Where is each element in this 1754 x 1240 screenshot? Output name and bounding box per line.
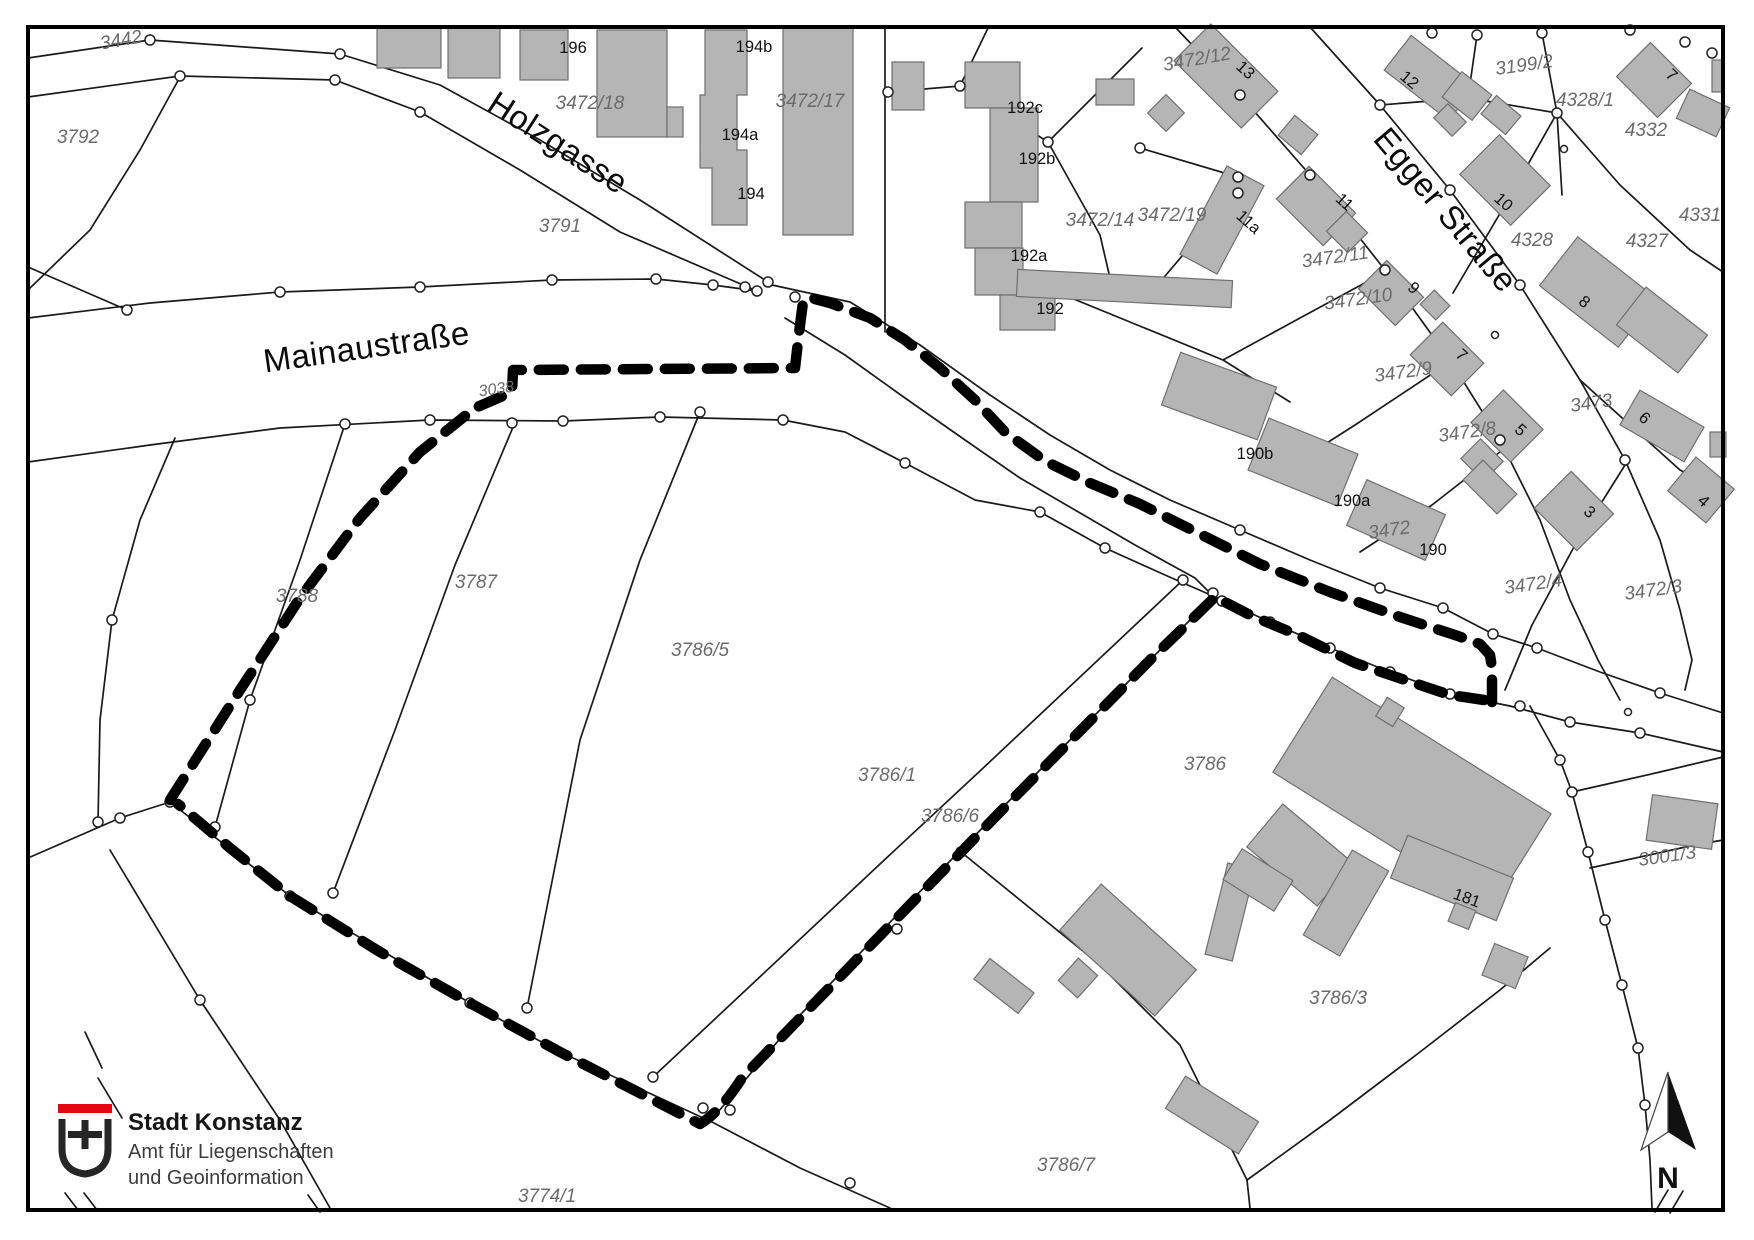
house-label-194b: 194b [736,38,773,56]
parcel-label-3472-18: 3472/18 [556,93,625,114]
parcel-label-3786-5: 3786/5 [671,640,730,661]
parcel-label-3792: 3792 [57,127,100,148]
house-label-192: 192 [1036,300,1064,318]
house-label-190b: 190b [1237,445,1274,463]
parcel-label-3472-14: 3472/14 [1066,210,1135,231]
logo-subtitle-line2: und Geoinformation [128,1167,304,1189]
cadastral-map-page: Holzgasse Mainaustraße Egger Straße 3442… [0,0,1754,1240]
parcel-label-3787: 3787 [455,572,499,593]
parcel-label-3786-7: 3786/7 [1037,1155,1097,1176]
parcel-label-3791: 3791 [539,216,581,237]
house-label-192b: 192b [1019,150,1056,168]
parcel-label-4332: 4332 [1625,120,1668,141]
house-label-192c: 192c [1007,99,1043,117]
north-arrow-label: N [1657,1162,1679,1195]
house-label-194: 194 [737,185,765,203]
parcel-label-3788: 3788 [276,586,319,607]
parcel-label-3786-6: 3786/6 [921,806,980,827]
parcel-label-3472-17: 3472/17 [776,91,846,112]
logo-title: Stadt Konstanz [128,1109,303,1136]
parcel-label-3472-19: 3472/19 [1138,205,1207,226]
house-label-196: 196 [559,39,587,57]
house-label-192a: 192a [1011,247,1049,265]
logo-subtitle-line1: Amt für Liegenschaften [128,1141,334,1163]
logo-red-bar [58,1104,112,1113]
house-label-194a: 194a [722,126,760,144]
parcel-label-3786-3: 3786/3 [1309,988,1368,1009]
parcel-label-4328-1: 4328/1 [1556,90,1614,111]
parcel-label-3786: 3786 [1184,754,1227,775]
parcel-label-4331: 4331 [1679,205,1721,226]
parcel-label-3774-1: 3774/1 [518,1186,576,1207]
logo-cross-vertical [82,1120,89,1149]
parcel-label-4327: 4327 [1626,231,1670,252]
parcel-label-4328: 4328 [1511,230,1554,251]
house-label-190a: 190a [1334,492,1372,510]
parcel-label-3786-1: 3786/1 [858,765,916,786]
cadastral-map: Holzgasse Mainaustraße Egger Straße 3442… [0,0,1754,1240]
house-label-190: 190 [1419,541,1447,559]
